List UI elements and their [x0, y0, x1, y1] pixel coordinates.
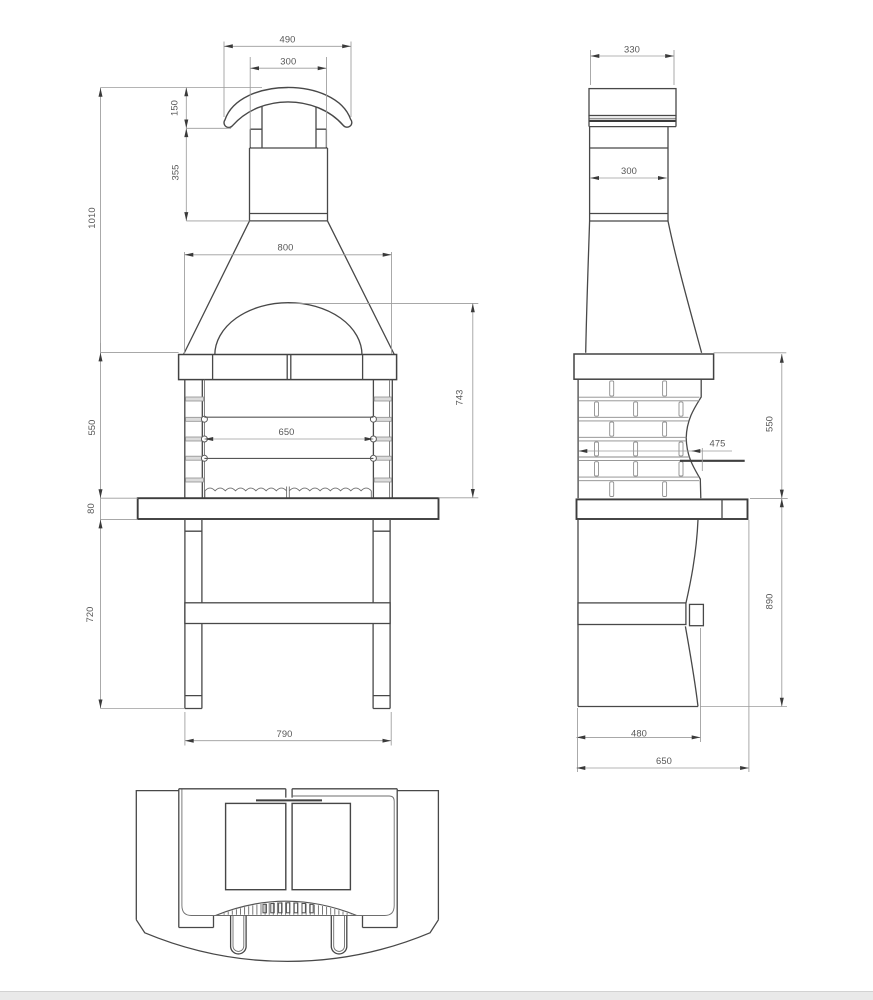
svg-text:650: 650 — [278, 426, 294, 437]
svg-text:650: 650 — [656, 755, 672, 766]
svg-text:330: 330 — [624, 44, 640, 55]
svg-text:743: 743 — [454, 389, 465, 405]
svg-text:550: 550 — [764, 416, 775, 432]
svg-text:490: 490 — [279, 34, 295, 45]
svg-text:475: 475 — [709, 438, 725, 449]
svg-text:300: 300 — [621, 165, 637, 176]
svg-text:480: 480 — [631, 728, 647, 739]
svg-text:720: 720 — [84, 606, 95, 622]
svg-text:355: 355 — [170, 164, 181, 180]
svg-text:150: 150 — [169, 100, 180, 116]
svg-text:790: 790 — [276, 728, 292, 739]
svg-text:800: 800 — [277, 242, 293, 253]
svg-text:80: 80 — [85, 503, 96, 514]
svg-text:300: 300 — [280, 56, 296, 67]
svg-text:1010: 1010 — [86, 207, 97, 228]
svg-text:550: 550 — [86, 419, 97, 435]
svg-text:890: 890 — [764, 593, 775, 609]
